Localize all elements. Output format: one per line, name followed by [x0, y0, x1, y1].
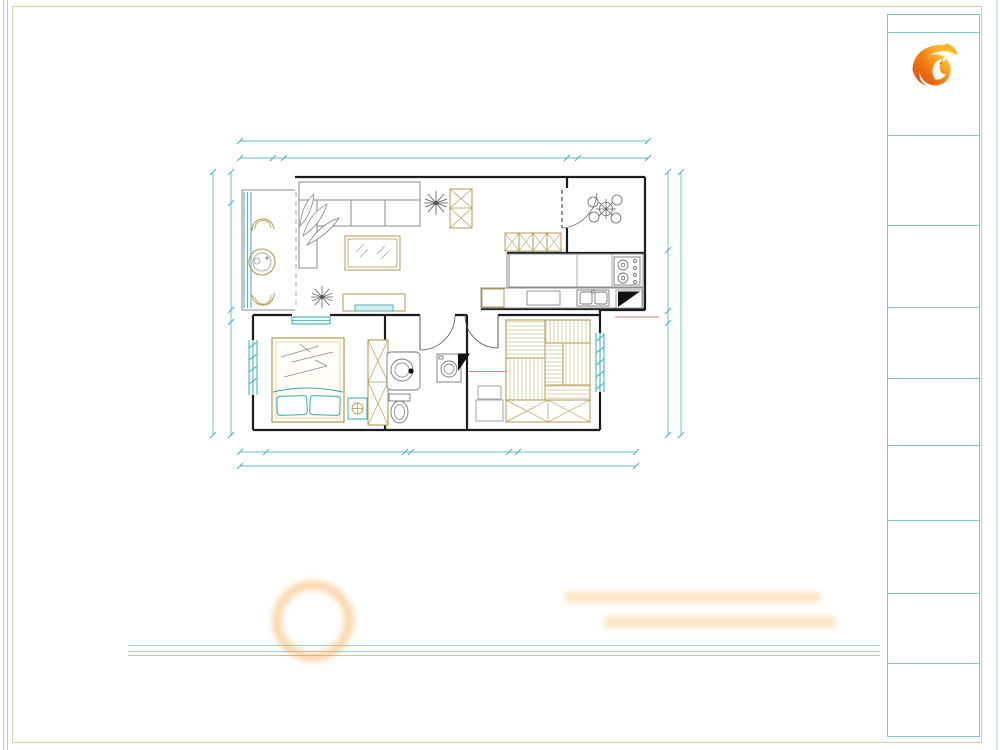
wardrobe [368, 340, 388, 425]
storage-cabinets [450, 189, 561, 251]
drawing-name-label [888, 308, 979, 312]
title-block-drawing-name-cell [888, 308, 979, 379]
tatami-mats [506, 320, 590, 400]
title-block-notes-cell [888, 226, 979, 308]
title-block-logo-cell [888, 33, 979, 136]
hall-cabinet [476, 386, 503, 421]
title-block-designer-cell [888, 446, 979, 521]
kitchen-flue [616, 290, 642, 308]
title-underline-teal [128, 645, 880, 652]
bathroom-door [420, 315, 455, 350]
audit-label [888, 525, 979, 531]
sliding-door [292, 317, 330, 324]
sofa [299, 182, 420, 268]
title-block-date-cell [888, 594, 979, 664]
floor-plan [0, 0, 1000, 750]
plant-icon [424, 191, 448, 215]
title-block-client-sign-cell [888, 379, 979, 446]
designer-label [888, 446, 979, 448]
coffee-table [345, 236, 400, 270]
porch-set [588, 195, 622, 223]
date-label [888, 594, 979, 596]
sheet-label [888, 664, 979, 666]
tatami-cabinet [506, 400, 590, 422]
title-block-project-cell [888, 136, 979, 226]
notes-text [888, 230, 979, 232]
linfeng-phoenix-logo-icon [903, 35, 965, 95]
project-label [888, 136, 979, 138]
tv-cabinet [343, 294, 405, 311]
entry-door [562, 190, 597, 228]
drawing-sheet [0, 0, 1000, 750]
title-block [887, 14, 980, 737]
title-block-manager-cell [888, 521, 979, 594]
brand-watermark-swirl [272, 580, 354, 662]
bathroom-fixtures [387, 352, 420, 423]
fridge-box [482, 289, 504, 307]
brand-watermark-blur-2 [605, 616, 835, 628]
title-block-sheet-cell [888, 664, 979, 737]
client-sign-label [888, 379, 979, 381]
title-underline-tan [128, 655, 880, 656]
appliance-box [527, 291, 560, 305]
washing-machine [437, 354, 461, 382]
bath-flue [458, 354, 470, 372]
title-block-company-row [888, 15, 979, 33]
tatami-door [465, 315, 498, 348]
plant-icon [311, 286, 333, 308]
brand-watermark-blur-1 [565, 592, 820, 602]
balcony-table-chairs [249, 219, 275, 305]
nightstand [348, 398, 367, 419]
